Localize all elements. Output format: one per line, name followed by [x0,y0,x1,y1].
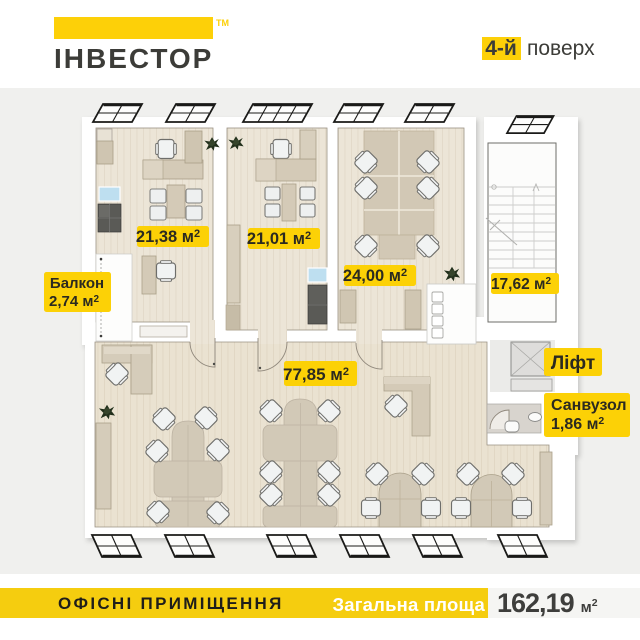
svg-text:2,74 м2: 2,74 м2 [49,293,99,310]
svg-text:поверх: поверх [527,37,595,60]
svg-text:Ліфт: Ліфт [551,353,595,374]
svg-text:Санвузол: Санвузол [551,397,627,414]
svg-text:21,01 м2: 21,01 м2 [247,230,311,248]
svg-text:21,38 м2: 21,38 м2 [136,228,200,246]
svg-text:Загальна площа: Загальна площа [332,594,485,615]
svg-text:Балкон: Балкон [50,275,104,292]
svg-text:24,00 м2: 24,00 м2 [343,267,407,285]
svg-text:ОФІСНІ ПРИМІЩЕННЯ: ОФІСНІ ПРИМІЩЕННЯ [58,594,284,613]
svg-text:ІНВЕСТОР: ІНВЕСТОР [54,43,213,74]
svg-text:77,85 м2: 77,85 м2 [283,365,349,384]
svg-text:TM: TM [216,18,229,28]
svg-text:4-й: 4-й [485,37,517,60]
svg-text:1,86 м2: 1,86 м2 [551,415,604,433]
svg-text:17,62 м2: 17,62 м2 [491,276,552,293]
